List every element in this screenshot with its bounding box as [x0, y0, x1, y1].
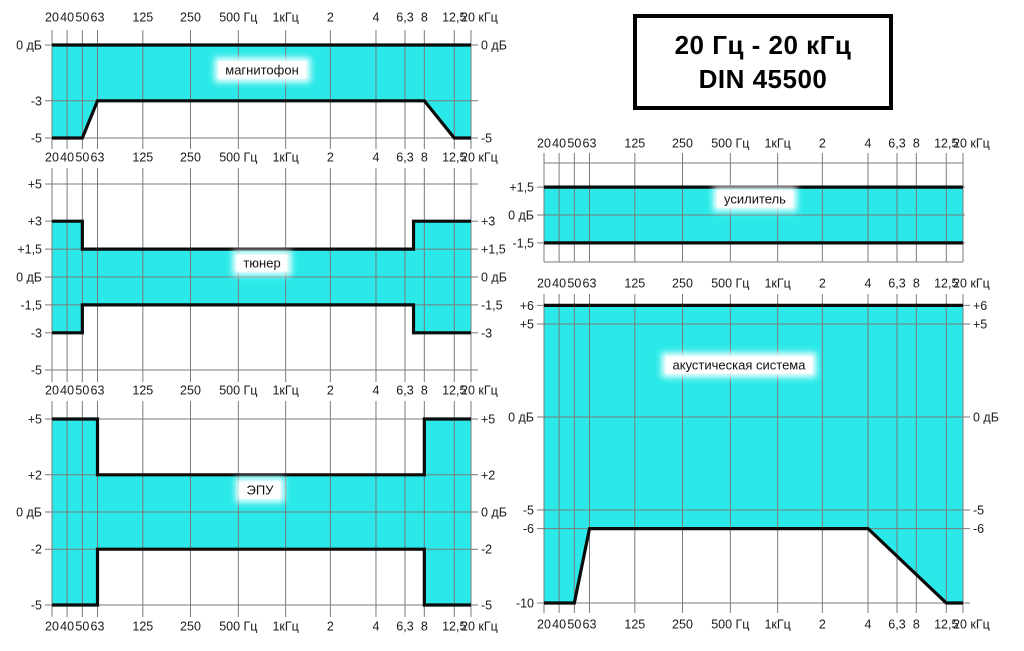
- db-axis-label: -5: [523, 504, 534, 518]
- db-axis-label: +1,5: [17, 243, 42, 257]
- freq-tick-label: 8: [421, 384, 428, 398]
- db-axis-label: +1,5: [509, 181, 534, 195]
- freq-tick-label: 8: [421, 11, 428, 25]
- freq-tick-label: 20 кГц: [953, 618, 990, 632]
- db-axis-label: -2: [481, 543, 492, 557]
- db-axis-label: +1,5: [481, 243, 506, 257]
- epu-lower-limit: [52, 549, 471, 605]
- chart-label-epu: ЭПУ: [240, 482, 281, 499]
- freq-tick-label: 125: [624, 618, 645, 632]
- epu-upper-limit: [52, 419, 471, 475]
- freq-tick-label: 40: [552, 137, 566, 151]
- freq-tick-label: 250: [180, 151, 201, 165]
- title-frequency-range: 20 Гц - 20 кГц: [675, 28, 852, 62]
- freq-tick-label: 2: [327, 620, 334, 634]
- title-box: 20 Гц - 20 кГц DIN 45500: [633, 14, 893, 110]
- freq-tick-label: 4: [372, 151, 379, 165]
- db-axis-label: +5: [28, 413, 42, 427]
- freq-tick-label: 2: [819, 618, 826, 632]
- freq-tick-label: 2: [327, 11, 334, 25]
- freq-tick-label: 63: [91, 620, 105, 634]
- freq-tick-label: 20 кГц: [953, 137, 990, 151]
- freq-tick-label: 40: [60, 384, 74, 398]
- db-axis-label: -1,5: [481, 298, 503, 312]
- freq-tick-label: 500 Гц: [711, 137, 749, 151]
- freq-tick-label: 40: [60, 151, 74, 165]
- db-axis-label: +3: [28, 215, 42, 229]
- freq-tick-label: 50: [567, 618, 581, 632]
- freq-tick-label: 1кГц: [272, 384, 298, 398]
- freq-tick-label: 6,3: [888, 137, 905, 151]
- db-axis-label: +5: [973, 318, 987, 332]
- freq-tick-label: 20: [537, 277, 551, 291]
- db-axis-label: -1,5: [20, 298, 42, 312]
- freq-tick-label: 2: [819, 277, 826, 291]
- freq-tick-label: 8: [421, 151, 428, 165]
- freq-tick-label: 4: [372, 384, 379, 398]
- freq-tick-label: 63: [583, 137, 597, 151]
- freq-tick-label: 1кГц: [272, 620, 298, 634]
- magnitofon-lower-limit: [52, 101, 471, 138]
- freq-tick-label: 1кГц: [764, 618, 790, 632]
- db-axis-label: +2: [481, 468, 495, 482]
- freq-tick-label: 4: [372, 620, 379, 634]
- din45500-tolerance-figure: 0 дБ-3-50 дБ-5+5+3+1,50 дБ-1,5-3-5+3+1,5…: [0, 0, 1024, 651]
- db-axis-label: -3: [481, 326, 492, 340]
- db-axis-label: +2: [28, 468, 42, 482]
- db-axis-label: -3: [31, 94, 42, 108]
- freq-tick-label: 63: [91, 151, 105, 165]
- freq-tick-label: 6,3: [396, 11, 413, 25]
- freq-tick-label: 125: [132, 151, 153, 165]
- freq-tick-label: 50: [75, 384, 89, 398]
- freq-tick-label: 40: [60, 11, 74, 25]
- freq-tick-label: 500 Гц: [219, 620, 257, 634]
- freq-tick-label: 20: [45, 620, 59, 634]
- freq-tick-label: 125: [132, 620, 153, 634]
- db-axis-label: -5: [31, 132, 42, 146]
- freq-tick-label: 8: [421, 620, 428, 634]
- freq-tick-label: 40: [60, 620, 74, 634]
- freq-tick-label: 1кГц: [764, 137, 790, 151]
- freq-tick-label: 125: [624, 277, 645, 291]
- freq-tick-label: 250: [672, 137, 693, 151]
- db-axis-label: -3: [31, 326, 42, 340]
- freq-tick-label: 50: [75, 620, 89, 634]
- freq-tick-label: 20 кГц: [461, 384, 498, 398]
- db-axis-label: +6: [520, 299, 534, 313]
- db-axis-label: +5: [520, 318, 534, 332]
- db-axis-label: +5: [481, 413, 495, 427]
- freq-tick-label: 250: [180, 620, 201, 634]
- freq-tick-label: 8: [913, 277, 920, 291]
- db-axis-label: -5: [481, 132, 492, 146]
- db-axis-label: 0 дБ: [16, 271, 42, 285]
- freq-tick-label: 50: [567, 277, 581, 291]
- freq-tick-label: 20 кГц: [461, 620, 498, 634]
- db-axis-label: -1,5: [512, 236, 534, 250]
- db-axis-label: 0 дБ: [481, 271, 507, 285]
- freq-tick-label: 20: [537, 618, 551, 632]
- chart-label-magnitofon: магнитофон: [218, 62, 306, 79]
- magnitofon-tolerance-band: [52, 45, 471, 138]
- db-axis-label: +3: [481, 215, 495, 229]
- freq-tick-label: 125: [132, 11, 153, 25]
- db-axis-label: +6: [973, 299, 987, 313]
- freq-tick-label: 250: [180, 11, 201, 25]
- freq-tick-label: 4: [864, 277, 871, 291]
- db-axis-label: -2: [31, 543, 42, 557]
- freq-tick-label: 6,3: [396, 620, 413, 634]
- title-standard: DIN 45500: [699, 62, 828, 96]
- freq-tick-label: 20: [45, 384, 59, 398]
- db-axis-label: 0 дБ: [16, 506, 42, 520]
- freq-tick-label: 500 Гц: [219, 151, 257, 165]
- freq-tick-label: 40: [552, 277, 566, 291]
- freq-tick-label: 125: [624, 137, 645, 151]
- freq-tick-label: 250: [672, 618, 693, 632]
- freq-tick-label: 125: [132, 384, 153, 398]
- freq-tick-label: 8: [913, 618, 920, 632]
- db-axis-label: -5: [481, 599, 492, 613]
- freq-tick-label: 1кГц: [764, 277, 790, 291]
- db-axis-label: +5: [28, 178, 42, 192]
- freq-tick-label: 20 кГц: [461, 11, 498, 25]
- freq-tick-label: 50: [75, 151, 89, 165]
- db-axis-label: 0 дБ: [973, 411, 999, 425]
- freq-tick-label: 4: [372, 11, 379, 25]
- freq-tick-label: 20: [45, 11, 59, 25]
- freq-tick-label: 500 Гц: [219, 384, 257, 398]
- db-axis-label: 0 дБ: [481, 506, 507, 520]
- freq-tick-label: 2: [327, 384, 334, 398]
- freq-tick-label: 40: [552, 618, 566, 632]
- db-axis-label: 0 дБ: [508, 411, 534, 425]
- freq-tick-label: 6,3: [888, 277, 905, 291]
- freq-tick-label: 6,3: [396, 384, 413, 398]
- freq-tick-label: 2: [327, 151, 334, 165]
- freq-tick-label: 8: [913, 137, 920, 151]
- chart-label-usilitel: усилитель: [717, 191, 793, 208]
- chart-label-tyuner: тюнер: [236, 255, 287, 272]
- freq-tick-label: 500 Гц: [219, 11, 257, 25]
- tyuner-lower-limit: [52, 305, 471, 333]
- freq-tick-label: 63: [583, 277, 597, 291]
- freq-tick-label: 4: [864, 137, 871, 151]
- db-axis-label: 0 дБ: [508, 209, 534, 223]
- freq-tick-label: 6,3: [888, 618, 905, 632]
- db-axis-label: -5: [31, 364, 42, 378]
- freq-tick-label: 50: [75, 11, 89, 25]
- freq-tick-label: 4: [864, 618, 871, 632]
- db-axis-label: -10: [516, 597, 534, 611]
- freq-tick-label: 250: [180, 384, 201, 398]
- db-axis-label: -6: [523, 522, 534, 536]
- freq-tick-label: 1кГц: [272, 11, 298, 25]
- freq-tick-label: 1кГц: [272, 151, 298, 165]
- freq-tick-label: 20: [537, 137, 551, 151]
- tyuner-upper-limit: [52, 221, 471, 249]
- freq-tick-label: 20 кГц: [953, 277, 990, 291]
- chart-label-akustika: акустическая система: [666, 357, 813, 374]
- db-axis-label: -5: [31, 599, 42, 613]
- freq-tick-label: 20: [45, 151, 59, 165]
- freq-tick-label: 6,3: [396, 151, 413, 165]
- db-axis-label: 0 дБ: [481, 39, 507, 53]
- db-axis-label: -5: [973, 504, 984, 518]
- freq-tick-label: 50: [567, 137, 581, 151]
- db-axis-label: -6: [973, 522, 984, 536]
- freq-tick-label: 63: [91, 384, 105, 398]
- freq-tick-label: 500 Гц: [711, 618, 749, 632]
- freq-tick-label: 20 кГц: [461, 151, 498, 165]
- freq-tick-label: 250: [672, 277, 693, 291]
- freq-tick-label: 2: [819, 137, 826, 151]
- freq-tick-label: 63: [91, 11, 105, 25]
- freq-tick-label: 63: [583, 618, 597, 632]
- freq-tick-label: 500 Гц: [711, 277, 749, 291]
- db-axis-label: 0 дБ: [16, 39, 42, 53]
